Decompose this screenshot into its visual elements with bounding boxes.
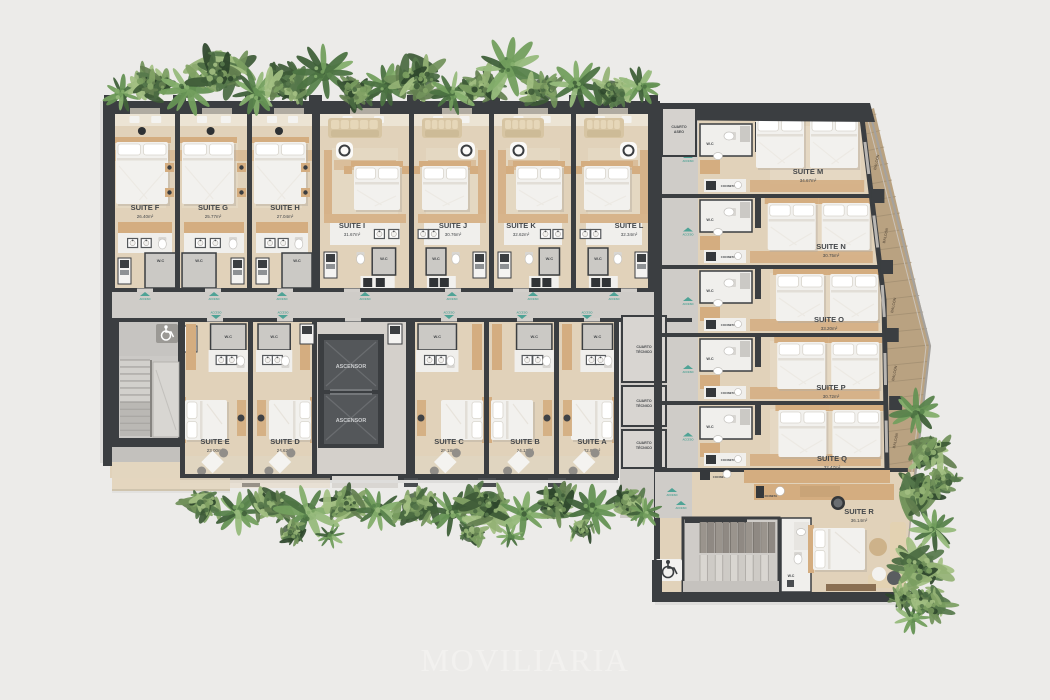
svg-text:34.67m²: 34.67m²: [800, 178, 817, 183]
svg-text:W.C: W.C: [706, 289, 713, 293]
svg-text:SUITE O: SUITE O: [814, 315, 844, 324]
svg-text:MOVILIARIA: MOVILIARIA: [421, 642, 630, 678]
svg-text:W.C: W.C: [224, 334, 232, 339]
svg-text:ACCESO: ACCESO: [139, 297, 150, 301]
svg-text:ACCESO: ACCESO: [276, 297, 287, 301]
svg-text:TÉCNICO: TÉCNICO: [636, 445, 652, 450]
svg-text:ACCESO: ACCESO: [527, 297, 538, 301]
svg-text:SUITE J: SUITE J: [439, 221, 467, 230]
svg-text:CUARTO: CUARTO: [636, 345, 652, 349]
svg-text:ACCESO: ACCESO: [208, 297, 219, 301]
svg-text:W.C: W.C: [270, 334, 278, 339]
svg-text:ACCESO: ACCESO: [608, 297, 619, 301]
svg-text:ACCESO: ACCESO: [443, 311, 454, 315]
svg-text:W.C: W.C: [594, 334, 602, 339]
svg-text:W.C: W.C: [380, 256, 388, 261]
svg-text:ACCESO: ACCESO: [675, 506, 686, 510]
svg-text:W.C: W.C: [432, 256, 440, 261]
svg-text:W.C: W.C: [195, 258, 203, 263]
svg-text:SUITE N: SUITE N: [816, 242, 846, 251]
svg-text:COCINETA: COCINETA: [721, 184, 735, 188]
svg-text:TÉCNICO: TÉCNICO: [636, 403, 652, 408]
svg-text:W.C: W.C: [706, 142, 713, 146]
svg-text:SUITE E: SUITE E: [200, 437, 229, 446]
svg-text:SUITE P: SUITE P: [816, 383, 845, 392]
svg-text:30.72m²: 30.72m²: [823, 394, 840, 399]
svg-text:ACCESO: ACCESO: [682, 370, 693, 374]
svg-text:CUARTO: CUARTO: [636, 441, 652, 445]
svg-text:COCINETA: COCINETA: [721, 458, 735, 462]
svg-text:30.76m²: 30.76m²: [445, 232, 462, 237]
svg-text:SUITE B: SUITE B: [510, 437, 540, 446]
svg-text:ACCESO: ACCESO: [682, 159, 693, 163]
svg-text:SUITE F: SUITE F: [131, 203, 160, 212]
svg-text:ACCESO: ACCESO: [516, 311, 527, 315]
svg-text:SUITE G: SUITE G: [198, 203, 228, 212]
svg-text:W.C: W.C: [546, 256, 554, 261]
svg-text:W.C: W.C: [293, 258, 301, 263]
svg-text:ACCESO: ACCESO: [359, 297, 370, 301]
svg-text:ACCESO: ACCESO: [581, 311, 592, 315]
svg-text:W.C: W.C: [788, 574, 795, 578]
svg-text:ASCENSOR: ASCENSOR: [336, 364, 367, 370]
svg-text:SUITE L: SUITE L: [615, 221, 644, 230]
svg-text:30.75m²: 30.75m²: [823, 253, 840, 258]
svg-text:25.77m²: 25.77m²: [205, 214, 222, 219]
svg-text:SUITE I: SUITE I: [339, 221, 365, 230]
svg-text:W.C: W.C: [530, 334, 538, 339]
svg-text:SUITE Q: SUITE Q: [817, 454, 847, 463]
svg-text:ACCESO: ACCESO: [682, 438, 693, 442]
svg-text:SUITE H: SUITE H: [270, 203, 300, 212]
svg-text:ACCESO: ACCESO: [666, 493, 677, 497]
svg-text:31.67m²: 31.67m²: [344, 232, 361, 237]
svg-text:SUITE A: SUITE A: [577, 437, 607, 446]
svg-text:32.62m²: 32.62m²: [513, 232, 530, 237]
svg-text:COCINETA: COCINETA: [721, 391, 735, 395]
svg-text:CUARTO: CUARTO: [671, 125, 687, 129]
svg-text:SUITE R: SUITE R: [844, 507, 874, 516]
svg-text:ACCESO: ACCESO: [210, 311, 221, 315]
svg-text:SUITE C: SUITE C: [434, 437, 464, 446]
svg-text:SUITE K: SUITE K: [506, 221, 536, 230]
svg-text:33.20m²: 33.20m²: [821, 326, 838, 331]
svg-text:SUITE M: SUITE M: [793, 167, 823, 176]
svg-text:32.34m²: 32.34m²: [621, 232, 638, 237]
svg-text:W.C: W.C: [594, 256, 602, 261]
svg-text:27.04m²: 27.04m²: [277, 214, 294, 219]
svg-text:W.C: W.C: [433, 334, 441, 339]
svg-text:SUITE D: SUITE D: [270, 437, 300, 446]
svg-text:COCINETA: COCINETA: [763, 494, 777, 498]
svg-text:ACCESO: ACCESO: [277, 311, 288, 315]
svg-text:CUARTO: CUARTO: [636, 399, 652, 403]
svg-text:ASCENSOR: ASCENSOR: [336, 418, 367, 424]
svg-text:26.40m²: 26.40m²: [137, 214, 154, 219]
svg-text:ACCESO: ACCESO: [682, 302, 693, 306]
svg-text:TÉCNICO: TÉCNICO: [636, 349, 652, 354]
svg-text:ASEO: ASEO: [674, 130, 684, 134]
svg-text:COCINETA: COCINETA: [721, 255, 735, 259]
svg-text:ACCESO: ACCESO: [682, 233, 693, 237]
svg-text:36.14m²: 36.14m²: [851, 518, 868, 523]
svg-text:W.C: W.C: [157, 258, 165, 263]
svg-text:W.C: W.C: [706, 218, 713, 222]
svg-text:ACCESO: ACCESO: [446, 297, 457, 301]
svg-text:W.C: W.C: [706, 357, 713, 361]
svg-text:COCINETA: COCINETA: [721, 323, 735, 327]
svg-text:W.C: W.C: [706, 425, 713, 429]
